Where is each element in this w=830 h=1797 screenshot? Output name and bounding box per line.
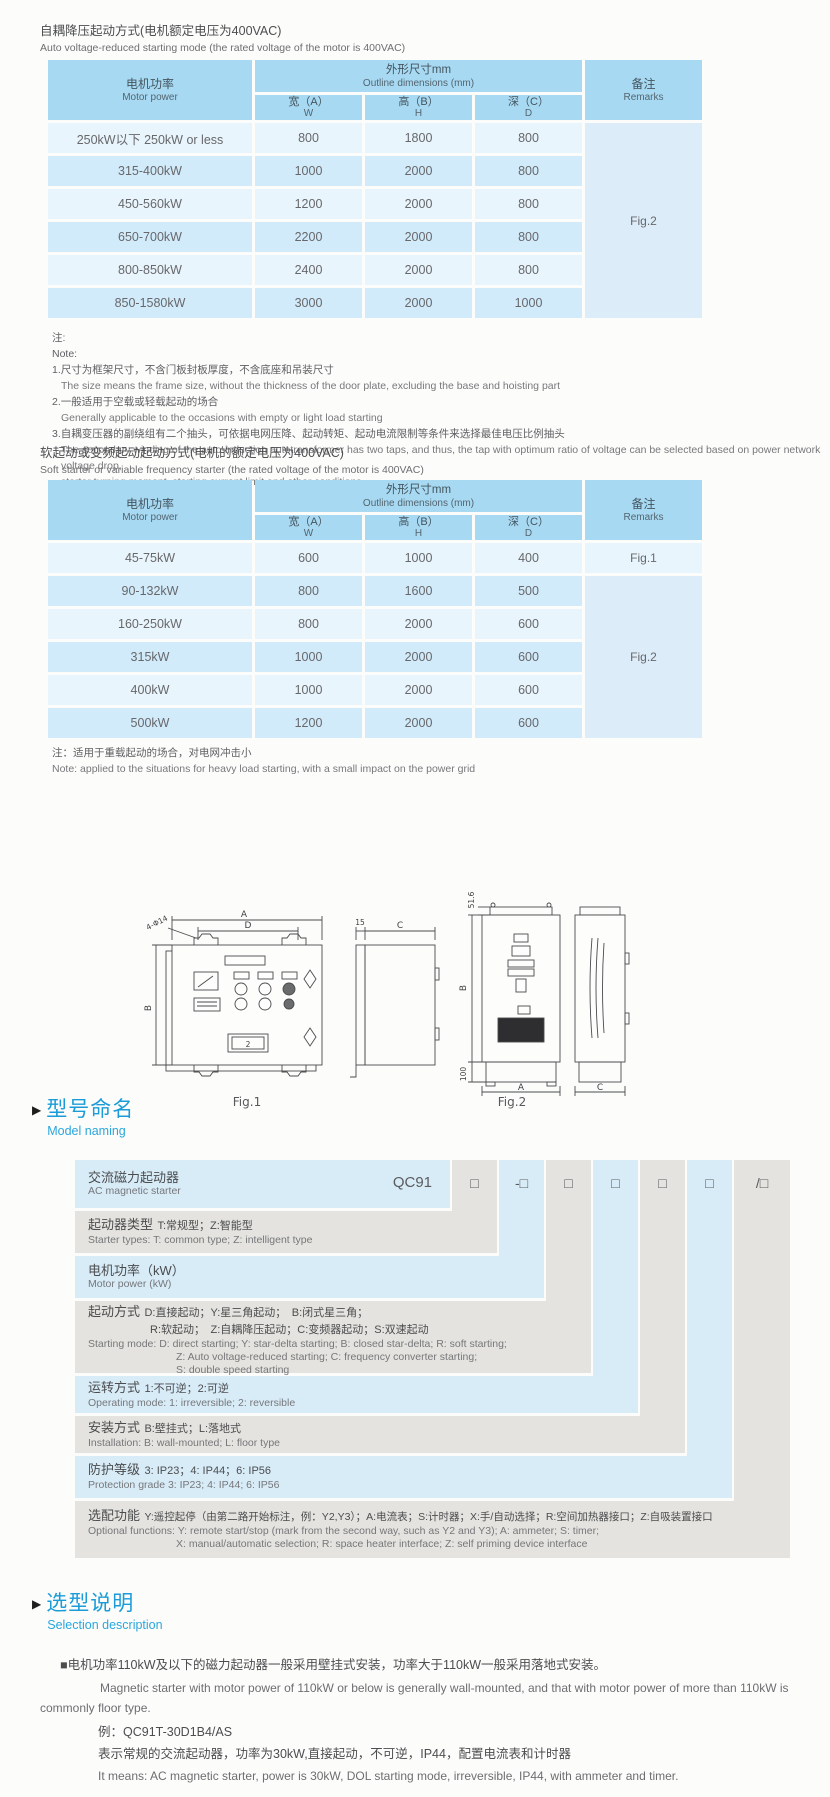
t2-r3-h: 2000 — [365, 609, 472, 639]
fig1-dim-B-label: B — [144, 1005, 154, 1011]
table1-header-motor-power: 电机功率 Motor power — [48, 60, 252, 120]
model-prefix: QC91 — [393, 1174, 432, 1191]
model-row5-label: 运转方式 — [88, 1380, 140, 1395]
t1-r5-h: 2000 — [365, 255, 472, 285]
fig1-side-body — [365, 945, 435, 1065]
fig2-lug-left — [491, 903, 495, 907]
t1-r3-d: 800 — [475, 189, 582, 219]
model-row-operating-mode: 运转方式 1:不可逆；2:可逆 Operating mode: 1: irrev… — [75, 1376, 638, 1413]
fig1-top-bracket-right — [282, 934, 306, 945]
t2-r1-d: 400 — [475, 543, 582, 573]
section2-title-en: Soft starter or variable frequency start… — [40, 464, 424, 476]
t2-r1-power: 45-75kW — [48, 543, 252, 573]
model-row3-en: Motor power (kW) — [88, 1278, 544, 1291]
fig2-side-latch-top — [625, 953, 629, 964]
note1-item1-zh: 1.尺寸为框架尺寸，不含门板封板厚度，不含底座和吊装尺寸 — [52, 362, 830, 378]
t1-r5-d: 800 — [475, 255, 582, 285]
header-w-zh: 宽（A） — [288, 516, 328, 528]
t2-r4-h: 2000 — [365, 642, 472, 672]
note1-item3-zh: 3.自耦变压器的副绕组有二个抽头，可依据电网压降、起动转矩、起动电流限制等条件来… — [52, 426, 830, 442]
header-remarks-zh: 备注 — [631, 497, 655, 511]
header-dims-zh: 外形尺寸mm — [386, 483, 451, 497]
model-naming-title-en: Model naming — [47, 1124, 134, 1138]
t1-r3-h: 2000 — [365, 189, 472, 219]
fig1-side-doorplate — [356, 945, 365, 1065]
selection-header: ▶ 选型说明 Selection description — [32, 1592, 163, 1632]
fig2-dim-B-label: B — [459, 985, 469, 991]
model-row-product: 交流磁力起动器 AC magnetic starter QC91 — [75, 1160, 450, 1208]
t1-r4-h: 2000 — [365, 222, 472, 252]
section1-title: 自耦降压起动方式(电机额定电压为400VAC) Auto voltage-red… — [40, 20, 405, 54]
note1-en-mark: Note: — [52, 346, 830, 362]
fig2-caption: Fig.2 — [498, 1095, 526, 1109]
selection-example-zh: 表示常规的交流起动器，功率为30kW,直接起动，不可逆，IP44，配置电流表和计… — [40, 1744, 792, 1764]
table1-header-outline-dims: 外形尺寸mm Outline dimensions (mm) — [255, 60, 582, 92]
t2-r1-remark: Fig.1 — [585, 543, 702, 573]
note1-item2-zh: 2.一般适用于空载或轻载起动的场合 — [52, 394, 830, 410]
t1-r5-w: 2400 — [255, 255, 362, 285]
t1-r4-d: 800 — [475, 222, 582, 252]
fig1-holes-label: 4-Φ14 — [145, 913, 170, 932]
model-naming-table: □ -□ □ □ □ □ /□ 交流磁力起动器 AC magnetic star… — [75, 1160, 790, 1558]
note1-item2-en: Generally applicable to the occasions wi… — [52, 410, 830, 426]
model-code-column-5: □ — [640, 1160, 685, 1453]
code-box-4: □ — [611, 1160, 619, 1191]
model-row-motor-power: 电机功率（kW） Motor power (kW) — [75, 1256, 544, 1298]
model-row4-desc1: D:直接起动；Y:星三角起动； B:闭式星三角； — [144, 1307, 368, 1319]
code-box-2: -□ — [515, 1160, 528, 1191]
t2-r4-power: 315kW — [48, 642, 252, 672]
code-box-7: /□ — [756, 1160, 768, 1191]
code-box-1: □ — [470, 1160, 478, 1191]
model-row6-label: 安装方式 — [88, 1420, 140, 1435]
t2-r6-w: 1200 — [255, 708, 362, 738]
table-row: 45-75kW 600 1000 400 Fig.1 — [48, 543, 702, 573]
table2-body: 45-75kW 600 1000 400 Fig.1 90-132kW 800 … — [48, 543, 702, 738]
header-h-en: H — [415, 108, 422, 119]
t2-r3-power: 160-250kW — [48, 609, 252, 639]
fig1-bottom-bracket-right — [282, 1065, 306, 1076]
t2-r4-d: 600 — [475, 642, 582, 672]
fig2-side-base — [579, 1062, 621, 1082]
t2-r3-d: 600 — [475, 609, 582, 639]
model-row8-en1: Optional functions: Y: remote start/stop… — [88, 1525, 790, 1538]
fig1-dim-C-label: C — [397, 921, 403, 931]
table1-body: 250kW以下 250kW or less 800 1800 800 315-4… — [48, 123, 702, 318]
t2-r2-w: 800 — [255, 576, 362, 606]
fig1-side-bottom-hook — [350, 1065, 356, 1077]
t2-r5-h: 2000 — [365, 675, 472, 705]
fig2-dim-A-label: A — [518, 1083, 525, 1093]
header-motor-en: Motor power — [122, 512, 178, 524]
selection-body: ■电机功率110kW及以下的磁力起动器一般采用壁挂式安装，功率大于110kW一般… — [40, 1655, 792, 1786]
fig1-button-3 — [283, 983, 295, 995]
triangle-marker-icon: ▶ — [32, 1597, 41, 1611]
header-motor-zh: 电机功率 — [126, 77, 174, 91]
t2-r2-h: 1600 — [365, 576, 472, 606]
table2-header-outline-dims: 外形尺寸mm Outline dimensions (mm) — [255, 480, 582, 512]
t2-r2-d: 500 — [475, 576, 582, 606]
t1-r6-w: 3000 — [255, 288, 362, 318]
table1-header: 电机功率 Motor power 外形尺寸mm Outline dimensio… — [48, 60, 702, 120]
fig1-dim-15-label: 15 — [355, 918, 365, 927]
model-row-starting-mode: 起动方式 D:直接起动；Y:星三角起动； B:闭式星三角； R:软起动； Z:自… — [75, 1301, 591, 1373]
table2-remarks-merged-cell: Fig.2 — [585, 576, 702, 738]
table-auto-voltage-reduced: 电机功率 Motor power 外形尺寸mm Outline dimensio… — [48, 60, 702, 321]
header-d-en: D — [525, 528, 532, 539]
header-w-en: W — [304, 528, 313, 539]
model-code-column-6: □ — [687, 1160, 732, 1498]
fig1-dim-D-label: D — [245, 921, 252, 931]
table1-header-depth: 深（C） D — [475, 95, 582, 120]
fig2-drawing — [468, 903, 629, 1096]
model-row-starter-type: 起动器类型 T:常规型；Z:智能型 Starter types: T: comm… — [75, 1211, 497, 1253]
fig2-dim-100-label: 100 — [459, 1067, 468, 1082]
fig1-dim-A-label: A — [241, 910, 248, 920]
header-dims-en: Outline dimensions (mm) — [363, 498, 474, 510]
table2-header-motor-power: 电机功率 Motor power — [48, 480, 252, 540]
fig1-caption: Fig.1 — [233, 1095, 261, 1109]
section2-title: 软起动或变频起动起动方式(电机的额定电压为400VAC) Soft starte… — [40, 442, 424, 476]
t2-r1-w: 600 — [255, 543, 362, 573]
t1-r2-h: 2000 — [365, 156, 472, 186]
table-soft-starter: 电机功率 Motor power 外形尺寸mm Outline dimensio… — [48, 480, 702, 741]
code-box-6: □ — [705, 1160, 713, 1191]
table2-header-depth: 深（C） D — [475, 515, 582, 540]
fig1-drawing — [152, 916, 439, 1077]
fig1-bottom-bracket-left — [194, 1065, 218, 1076]
fig2-foot-right — [547, 1082, 556, 1086]
model-row-protection-grade: 防护等级 3: IP23；4: IP44；6: IP56 Protection … — [75, 1456, 732, 1498]
t2-r4-w: 1000 — [255, 642, 362, 672]
model-row6-desc: B:壁挂式；L:落地式 — [144, 1423, 241, 1435]
model-row7-label: 防护等级 — [88, 1462, 140, 1477]
t1-r4-w: 2200 — [255, 222, 362, 252]
t1-r6-power: 850-1580kW — [48, 288, 252, 318]
t2-r2-power: 90-132kW — [48, 576, 252, 606]
section1-title-en: Auto voltage-reduced starting mode (the … — [40, 42, 405, 54]
selection-example-en: It means: AC magnetic starter, power is … — [40, 1766, 792, 1786]
selection-p1-en: Magnetic starter with motor power of 110… — [40, 1678, 792, 1718]
t1-r6-h: 2000 — [365, 288, 472, 318]
section1-title-zh: 自耦降压起动方式(电机额定电压为400VAC) — [40, 20, 405, 39]
fig1-side-hinge-bottom — [435, 1028, 439, 1040]
fig2-side-latch-bottom — [625, 1013, 629, 1024]
t2-r5-w: 1000 — [255, 675, 362, 705]
note2-zh: 注：适用于重载起动的场合，对电网冲击小 — [52, 745, 475, 761]
fig1-tag-label: 2 — [246, 1040, 251, 1049]
model-row7-en: Protection grade 3: IP23; 4: IP44; 6: IP… — [88, 1479, 732, 1492]
note1-zh-mark: 注: — [52, 330, 830, 346]
model-row7-desc: 3: IP23；4: IP44；6: IP56 — [144, 1465, 271, 1477]
model-naming-header: ▶ 型号命名 Model naming — [32, 1098, 134, 1138]
model-naming-title-zh: 型号命名 — [46, 1098, 134, 1122]
model-row-installation: 安装方式 B:壁挂式；L:落地式 Installation: B: wall-m… — [75, 1416, 685, 1453]
t1-r6-d: 1000 — [475, 288, 582, 318]
header-remarks-en: Remarks — [623, 512, 663, 524]
model-row8-label: 选配功能 — [88, 1508, 140, 1523]
table1-header-remarks: 备注 Remarks — [585, 60, 702, 120]
t1-r2-w: 1000 — [255, 156, 362, 186]
code-box-3: □ — [564, 1160, 572, 1191]
t1-r4-power: 650-700kW — [48, 222, 252, 252]
header-w-zh: 宽（A） — [288, 96, 328, 108]
t1-r2-d: 800 — [475, 156, 582, 186]
selection-p1-zh-text: 电机功率110kW及以下的磁力起动器一般采用壁挂式安装，功率大于110kW一般采… — [68, 1658, 606, 1672]
fig2-side-body — [575, 915, 625, 1062]
table2-header: 电机功率 Motor power 外形尺寸mm Outline dimensio… — [48, 480, 702, 540]
fig2-lug-right — [547, 903, 551, 907]
fig1-button-6 — [284, 999, 294, 1009]
t2-r6-power: 500kW — [48, 708, 252, 738]
table2-header-remarks: 备注 Remarks — [585, 480, 702, 540]
t2-r5-d: 600 — [475, 675, 582, 705]
model-row4-en1: Starting mode: D: direct starting; Y: st… — [88, 1338, 591, 1351]
t1-r1-d: 800 — [475, 123, 582, 153]
header-d-en: D — [525, 108, 532, 119]
model-row8-desc: Y:遥控起停（由第二路开始标注，例：Y2,Y3）；A:电流表；S:计时器；X:手… — [144, 1511, 712, 1523]
selection-title-zh: 选型说明 — [46, 1592, 162, 1616]
header-dims-zh: 外形尺寸mm — [386, 63, 451, 77]
t2-r6-d: 600 — [475, 708, 582, 738]
fig2-vent — [498, 1018, 544, 1042]
header-remarks-zh: 备注 — [631, 77, 655, 91]
model-row5-en: Operating mode: 1: irreversible; 2: reve… — [88, 1397, 638, 1410]
table1-header-width: 宽（A） W — [255, 95, 362, 120]
selection-title-en: Selection description — [47, 1618, 162, 1632]
table2-header-height: 高（B） H — [365, 515, 472, 540]
model-row2-en: Starter types: T: common type; Z: intell… — [88, 1234, 497, 1247]
model-row4-label: 起动方式 — [88, 1304, 140, 1319]
selection-p1-zh: ■电机功率110kW及以下的磁力起动器一般采用壁挂式安装，功率大于110kW一般… — [40, 1655, 792, 1675]
outline-drawings: A D 4-Φ14 B 15 C 2 51.6 B 100 A C Fig.1 … — [0, 788, 830, 1118]
t1-r3-power: 450-560kW — [48, 189, 252, 219]
header-motor-en: Motor power — [122, 92, 178, 104]
header-d-zh: 深（C） — [508, 96, 549, 108]
code-box-5: □ — [658, 1160, 666, 1191]
table1-remarks-merged-cell: Fig.2 — [585, 123, 702, 318]
section2-title-zh: 软起动或变频起动起动方式(电机的额定电压为400VAC) — [40, 442, 424, 461]
square-bullet-icon: ■ — [60, 1658, 68, 1672]
model-row2-label: 起动器类型 — [88, 1217, 153, 1232]
table1-header-height: 高（B） H — [365, 95, 472, 120]
selection-example-code: 例：QC91T-30D1B4/AS — [40, 1722, 792, 1742]
model-code-column-7: /□ — [734, 1160, 790, 1558]
fig2-foot-left — [486, 1082, 495, 1086]
fig2-side-bar — [580, 907, 620, 915]
t1-r1-h: 1800 — [365, 123, 472, 153]
model-row3-zh: 电机功率（kW） — [88, 1263, 544, 1278]
header-remarks-en: Remarks — [623, 92, 663, 104]
fig2-base — [486, 1062, 556, 1082]
t2-r3-w: 800 — [255, 609, 362, 639]
header-h-en: H — [415, 528, 422, 539]
header-h-zh: 高（B） — [398, 516, 438, 528]
t1-r1-power: 250kW以下 250kW or less — [48, 123, 252, 153]
note2-en: Note: applied to the situations for heav… — [52, 761, 475, 777]
t1-r5-power: 800-850kW — [48, 255, 252, 285]
model-row-optional-functions: 选配功能 Y:遥控起停（由第二路开始标注，例：Y2,Y3）；A:电流表；S:计时… — [75, 1501, 790, 1558]
t2-r1-h: 1000 — [365, 543, 472, 573]
t1-r2-power: 315-400kW — [48, 156, 252, 186]
model-row4-desc2: R:软起动； Z:自耦降压起动；C:变频器起动；S:双速起动 — [150, 1324, 429, 1336]
fig1-side-hinge-top — [435, 968, 439, 980]
table2-header-width: 宽（A） W — [255, 515, 362, 540]
fig2-dim-C-label: C — [597, 1083, 603, 1093]
notes-table2: 注：适用于重载起动的场合，对电网冲击小 Note: applied to the… — [52, 745, 475, 777]
t1-r3-w: 1200 — [255, 189, 362, 219]
model-row4-en2: Z: Auto voltage-reduced starting; C: fre… — [88, 1351, 591, 1364]
header-motor-zh: 电机功率 — [126, 497, 174, 511]
model-row2-desc: T:常规型；Z:智能型 — [157, 1220, 252, 1232]
model-row6-en: Installation: B: wall-mounted; L: floor … — [88, 1437, 685, 1450]
note1-item1-en: The size means the frame size, without t… — [52, 378, 830, 394]
t2-r6-h: 2000 — [365, 708, 472, 738]
triangle-marker-icon: ▶ — [32, 1103, 41, 1117]
model-row5-desc: 1:不可逆；2:可逆 — [144, 1383, 228, 1395]
model-row8-en2: X: manual/automatic selection; R: space … — [88, 1538, 790, 1551]
t2-r5-power: 400kW — [48, 675, 252, 705]
header-dims-en: Outline dimensions (mm) — [363, 78, 474, 90]
header-d-zh: 深（C） — [508, 516, 549, 528]
t1-r1-w: 800 — [255, 123, 362, 153]
fig2-bar-label: 51.6 — [467, 891, 476, 908]
header-h-zh: 高（B） — [398, 96, 438, 108]
header-w-en: W — [304, 108, 313, 119]
fig2-hoist-bar — [490, 907, 552, 915]
